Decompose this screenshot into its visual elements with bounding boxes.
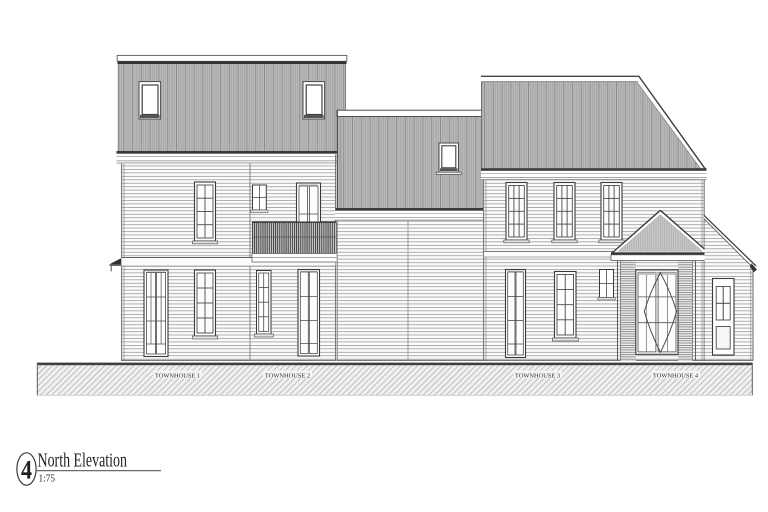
- svg-text:4: 4: [21, 456, 32, 485]
- svg-text:TOWNHOUSE 3: TOWNHOUSE 3: [515, 372, 560, 379]
- svg-text:1:75: 1:75: [39, 474, 56, 485]
- svg-text:TOWNHOUSE 1: TOWNHOUSE 1: [155, 372, 200, 379]
- svg-text:TOWNHOUSE 2: TOWNHOUSE 2: [265, 372, 310, 379]
- svg-text:North Elevation: North Elevation: [38, 450, 128, 472]
- svg-text:TOWNHOUSE 4: TOWNHOUSE 4: [653, 372, 699, 379]
